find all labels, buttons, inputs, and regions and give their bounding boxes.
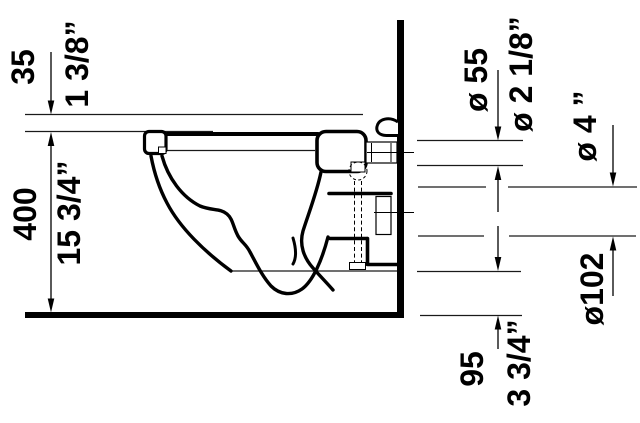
bolt-base-plate (350, 263, 366, 270)
mounting-bolt (349, 162, 367, 270)
dim-label-4-inch: ø 4 ” (567, 90, 603, 161)
dim-label-400-inch: 15 3/4” (51, 161, 87, 266)
dim-label-102-mm: ø102 (574, 253, 610, 326)
dim-label-95-inch: 3 3/4” (501, 319, 537, 406)
outlet-socket (376, 197, 391, 235)
dimension-inlet-diameter: ø 55 ø 2 1/8” (458, 16, 539, 271)
dim-label-55-mm: ø 55 (458, 48, 494, 112)
bowl-outer-front-curve (151, 156, 231, 271)
dimension-outlet-floor-clearance: 95 3 3/4” (454, 316, 537, 407)
flush-bend-cover (377, 119, 398, 136)
arrowhead-up (48, 132, 55, 146)
wall (397, 20, 404, 316)
floor (25, 312, 404, 318)
toilet-section-drawing: 35 1 3/8” 400 15 3/4” ø 55 ø 2 1/8” ø 4 … (0, 0, 640, 423)
arrowhead-down (610, 173, 617, 187)
bolt-nut (351, 162, 365, 172)
bowl-inner-curve (162, 156, 328, 294)
trap-back-curve (302, 172, 333, 290)
arrowhead-up (495, 166, 502, 180)
waste-outlet-connection (376, 197, 391, 235)
arrowhead-down (495, 127, 502, 141)
dimension-rim-drop: 35 1 3/8” (5, 20, 95, 114)
dimension-outlet-diameter: ø 4 ” ø102 (567, 90, 616, 325)
dim-label-400-mm: 400 (7, 187, 43, 240)
arrowhead-up (610, 237, 617, 251)
dim-label-55-inch: ø 2 1/8” (503, 16, 539, 132)
trap-weir-curve (293, 238, 296, 264)
arrowhead-down (48, 299, 55, 313)
dim-label-95-mm: 95 (454, 351, 490, 387)
technical-drawing-canvas: 35 1 3/8” 400 15 3/4” ø 55 ø 2 1/8” ø 4 … (0, 0, 640, 423)
dim-label-35-inch: 1 3/8” (59, 20, 95, 107)
dim-label-35-mm: 35 (5, 49, 41, 85)
arrowhead-down-lower (495, 257, 502, 271)
rim-front-notch (159, 147, 167, 154)
arrowhead-down (48, 101, 55, 115)
dimension-rim-height: 400 15 3/4” (7, 132, 87, 313)
